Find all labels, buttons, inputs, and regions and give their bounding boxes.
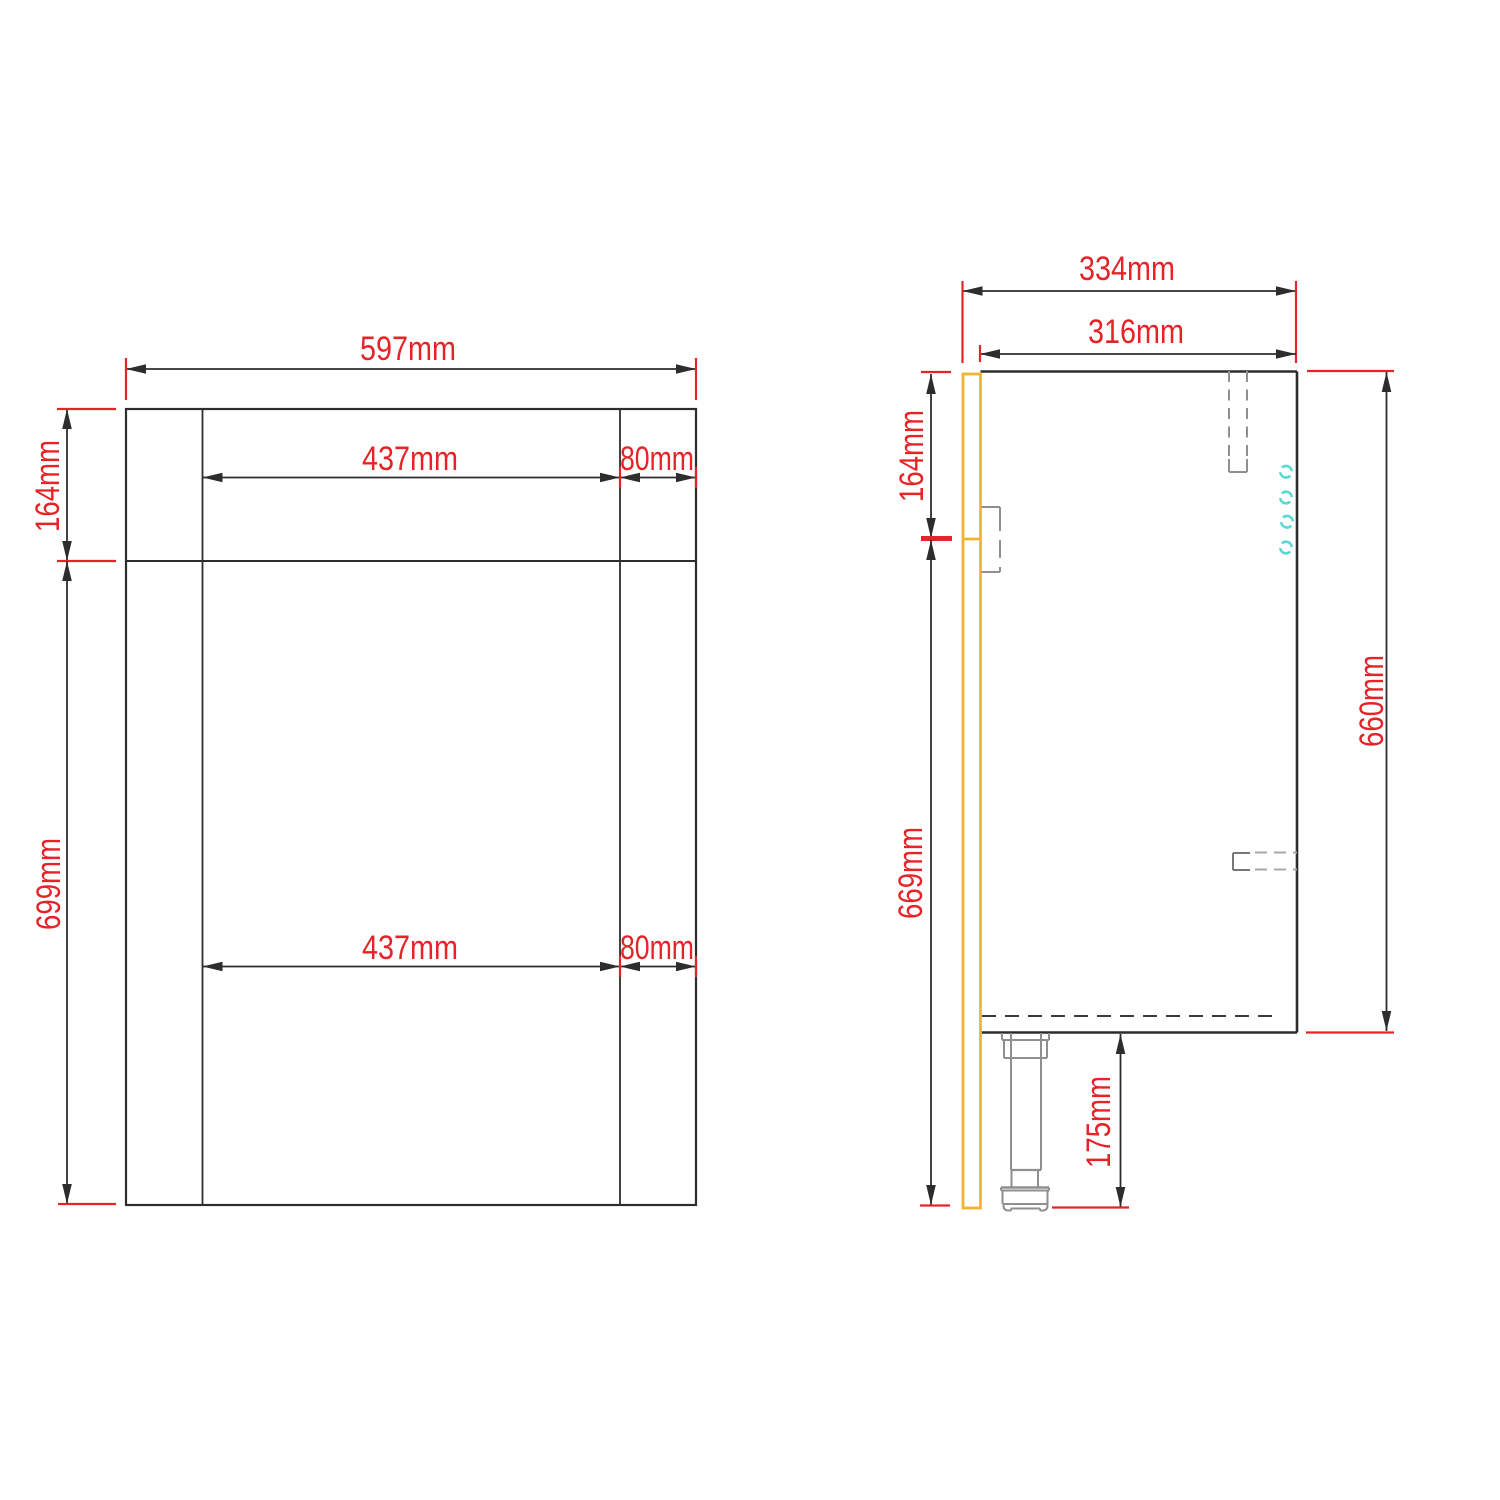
svg-text:175mm: 175mm [1080,1076,1118,1168]
svg-text:164mm: 164mm [893,410,931,502]
svg-text:437mm: 437mm [362,440,458,478]
svg-text:80mm: 80mm [620,929,694,967]
svg-text:669mm: 669mm [892,827,930,919]
svg-text:164mm: 164mm [29,440,67,532]
svg-text:699mm: 699mm [30,838,68,930]
svg-text:80mm: 80mm [620,440,694,478]
svg-text:437mm: 437mm [362,929,458,967]
svg-text:597mm: 597mm [360,330,456,368]
svg-text:660mm: 660mm [1353,655,1391,747]
svg-text:316mm: 316mm [1088,313,1184,351]
svg-text:334mm: 334mm [1079,250,1175,288]
